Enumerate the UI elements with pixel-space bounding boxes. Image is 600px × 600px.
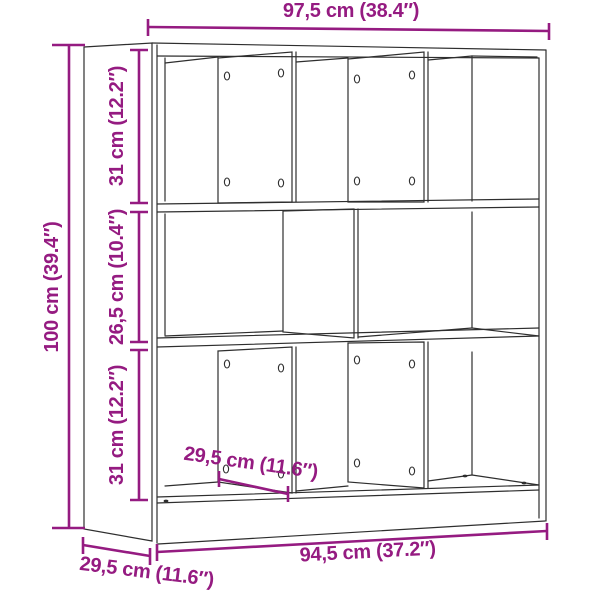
dim-middle-row-height: 26,5 cm (10.4″) [106, 209, 148, 345]
cam-hole [278, 69, 283, 77]
divider-panel [218, 52, 296, 203]
dim-inner-width: 94,5 cm (37.2″) [157, 523, 547, 567]
dim-overall-height-label: 100 cm (39.4″) [41, 221, 63, 352]
screw-dot [164, 500, 169, 503]
cam-hole [224, 360, 229, 368]
cam-hole [409, 360, 414, 368]
cam-hole [409, 177, 414, 185]
bottom-row-interior [165, 342, 539, 493]
divider-panel [348, 342, 428, 488]
cam-hole [224, 178, 229, 186]
divider-panel [348, 52, 428, 202]
dim-overall-width: 97,5 cm (38.4″) [148, 0, 549, 40]
cam-hole [354, 356, 359, 364]
divider-panel [283, 209, 358, 338]
cam-hole [224, 72, 229, 80]
right-side-panel [539, 50, 546, 521]
dim-outer-depth-label: 29,5 cm (11.6″) [78, 553, 215, 591]
cam-hole [354, 75, 359, 83]
cam-hole [354, 177, 359, 185]
dim-top-row-height-label: 31 cm (12.2″) [106, 66, 128, 186]
dim-top-row-height: 31 cm (12.2″) [106, 50, 148, 203]
dim-middle-row-height-label: 26,5 cm (10.4″) [106, 209, 128, 345]
dim-bottom-row-height: 31 cm (12.2″) [106, 350, 148, 500]
dim-outer-depth: 29,5 cm (11.6″) [78, 537, 215, 591]
diagram-canvas: 97,5 cm (38.4″) 100 cm (39.4″) 31 cm (12… [0, 0, 600, 600]
cam-hole [278, 179, 283, 187]
dim-overall-height: 100 cm (39.4″) [41, 45, 85, 528]
dim-bottom-row-height-label: 31 cm (12.2″) [106, 365, 128, 485]
top-row-interior [165, 52, 537, 203]
dim-inner-width-label: 94,5 cm (37.2″) [299, 537, 436, 566]
cam-hole [409, 71, 414, 79]
middle-row-interior [165, 209, 539, 338]
dim-inner-depth-label: 29,5 cm (11.6″) [182, 443, 319, 484]
cam-hole [354, 459, 359, 467]
dimension-annotations: 97,5 cm (38.4″) 100 cm (39.4″) 31 cm (12… [41, 0, 549, 591]
cam-hole [409, 467, 414, 475]
cam-hole [278, 364, 283, 372]
dimension-diagram: 97,5 cm (38.4″) 100 cm (39.4″) 31 cm (12… [0, 0, 600, 600]
dim-overall-width-label: 97,5 cm (38.4″) [283, 0, 419, 22]
